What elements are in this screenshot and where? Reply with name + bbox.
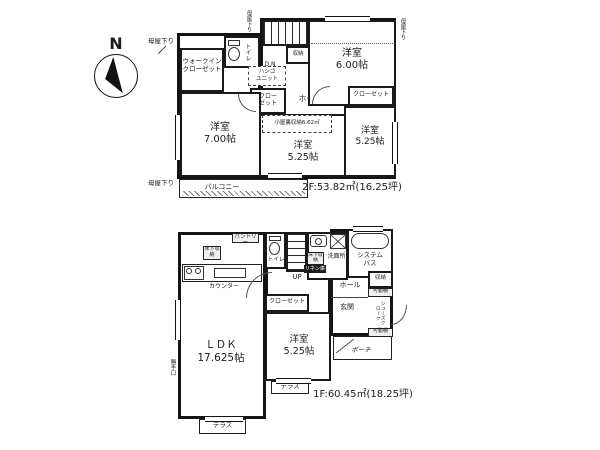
washing-machine-icon bbox=[330, 234, 346, 249]
balcony-rail-hatch bbox=[182, 191, 305, 196]
f2-moya-top-left-label: 母屋下り bbox=[144, 38, 178, 46]
f2-floor-area-label: 2F:53.82㎡(16.25坪) bbox=[288, 182, 416, 194]
f2-closet-right-label: クローゼット bbox=[348, 91, 394, 98]
window bbox=[205, 416, 243, 422]
f1-underfloor-storage-wash: 床下収納 bbox=[307, 252, 324, 265]
burner-icon bbox=[195, 268, 201, 274]
compass-icon bbox=[94, 54, 138, 98]
window bbox=[175, 115, 181, 160]
f1-porch-label: ポーチ bbox=[343, 347, 379, 355]
washbasin-bowl-icon bbox=[315, 238, 322, 245]
f1-closet-label: クローゼット bbox=[265, 298, 309, 305]
f1-floor-area-label: 1F:60.45㎡(18.25坪) bbox=[298, 389, 428, 401]
f1-hall-label: ホール bbox=[334, 281, 366, 290]
window bbox=[276, 378, 311, 384]
f2-wic-label: ウォークイン クローゼット bbox=[179, 58, 225, 74]
f1-back-door-label: 勝手口 bbox=[169, 352, 175, 382]
f2-moya-top-right-label: 母屋下り bbox=[399, 14, 405, 44]
f2-balcony-label: バルコニー bbox=[196, 183, 248, 192]
f2-moya-top-center-label: 母屋下り bbox=[245, 8, 251, 34]
f2-bedroom-6-label: 洋室 6.00帖 bbox=[318, 48, 386, 72]
toilet-bowl-icon bbox=[228, 47, 240, 61]
burner-icon bbox=[186, 268, 192, 274]
f2-ladder-unit-label: ハシゴ ユニット bbox=[248, 69, 286, 82]
f1-terrace-bottom-label: テラス bbox=[199, 422, 246, 430]
genkan-step-line bbox=[331, 297, 368, 298]
f2-attic-storage-label: 小屋裏収納6.62㎡ bbox=[262, 120, 332, 127]
f1-washroom-label: 洗面所 bbox=[325, 253, 348, 260]
f1-toilet-label: トイレ bbox=[266, 257, 286, 264]
window bbox=[175, 300, 181, 340]
f2-storage-label: 収納 bbox=[286, 51, 310, 58]
f1-linen-storage: リネン庫 bbox=[304, 265, 326, 273]
window bbox=[325, 16, 370, 22]
window bbox=[392, 122, 398, 164]
bathtub-icon bbox=[351, 233, 389, 249]
sink-icon bbox=[214, 268, 246, 278]
window bbox=[268, 173, 302, 179]
f1-underfloor-storage-kitchen: 床下収納 bbox=[203, 246, 221, 260]
north-label: N bbox=[104, 34, 128, 54]
floor-plan-page: N ウォークイン クローゼット トイレ D.N 収納 ハシゴ ユニット クロー … bbox=[0, 0, 600, 450]
window bbox=[353, 226, 383, 232]
f1-entrance-label: 玄関 bbox=[334, 303, 360, 312]
f2-bedroom-5-center-label: 洋室 5.25帖 bbox=[272, 140, 334, 163]
f1-pantry: パントリー bbox=[232, 233, 259, 243]
f1-bath-label: システム バス bbox=[352, 252, 388, 268]
f2-bedroom-5-right-label: 洋室 5.25帖 bbox=[346, 126, 394, 148]
f2-bedroom-7-label: 洋室 7.00帖 bbox=[190, 122, 250, 146]
moya-arrow bbox=[158, 46, 166, 54]
f1-counter-label: カウンター bbox=[198, 283, 250, 290]
f2-moya-dotted-line bbox=[311, 43, 393, 44]
door-arc bbox=[391, 305, 407, 325]
toilet-tank-icon bbox=[269, 236, 281, 241]
f1-shoe-cloak-label: シューズクローク bbox=[374, 299, 384, 327]
toilet-tank-icon bbox=[228, 40, 240, 46]
f2-moya-left-label: 母屋下り bbox=[144, 180, 178, 188]
north-arrow-needle bbox=[99, 57, 133, 95]
f2-toilet-label: トイレ bbox=[244, 39, 250, 65]
f1-bedroom-5-label: 洋室 5.25帖 bbox=[276, 334, 322, 357]
f2-stairs bbox=[262, 20, 309, 46]
f1-storage-label: 収納 bbox=[368, 275, 393, 282]
f1-outline-ldk bbox=[178, 232, 266, 419]
f1-stairs-up-label: UP bbox=[288, 273, 306, 282]
f1-ldk-label: ＬＤＫ 17.625帖 bbox=[190, 339, 252, 365]
f1-shelf-top: 可動棚 bbox=[368, 288, 393, 297]
toilet-bowl-icon bbox=[269, 242, 280, 255]
